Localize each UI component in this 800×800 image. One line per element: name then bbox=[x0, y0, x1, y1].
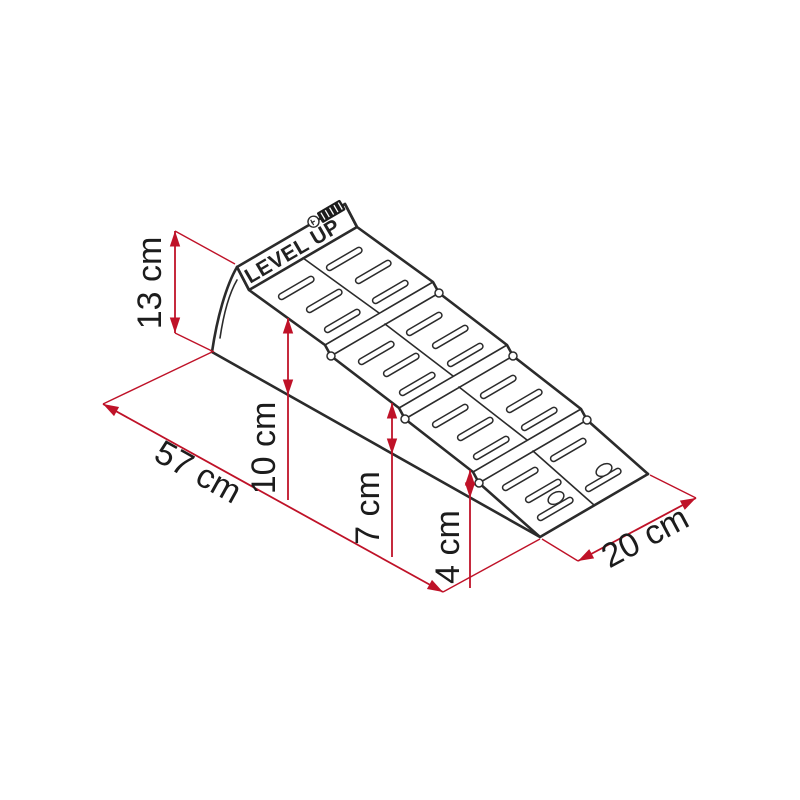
ramp-nose-accent bbox=[220, 280, 237, 338]
dimension-label-20cm: 20 cm bbox=[595, 499, 695, 576]
dimension-height-13cm: 13 cm bbox=[131, 231, 235, 352]
level-up-ramp-dimension-diagram: LEVEL UP 13 cm 57 cm 10 cm bbox=[0, 0, 800, 800]
ramp-center-rib bbox=[303, 258, 594, 505]
dimension-label-10cm: 10 cm bbox=[245, 402, 283, 495]
ramp-tread-slots bbox=[277, 246, 622, 521]
dimension-label-57cm: 57 cm bbox=[148, 433, 247, 511]
diagram-page: LEVEL UP 13 cm 57 cm 10 cm bbox=[0, 0, 800, 800]
dimension-label-7cm: 7 cm bbox=[349, 471, 387, 545]
dimension-label-13cm: 13 cm bbox=[131, 237, 169, 330]
dimension-step-7cm: 7 cm bbox=[349, 403, 397, 557]
dimension-label-4cm: 4 cm bbox=[429, 510, 467, 584]
dimension-step-10cm: 10 cm bbox=[245, 318, 293, 500]
ramp-back-rail bbox=[345, 204, 648, 474]
